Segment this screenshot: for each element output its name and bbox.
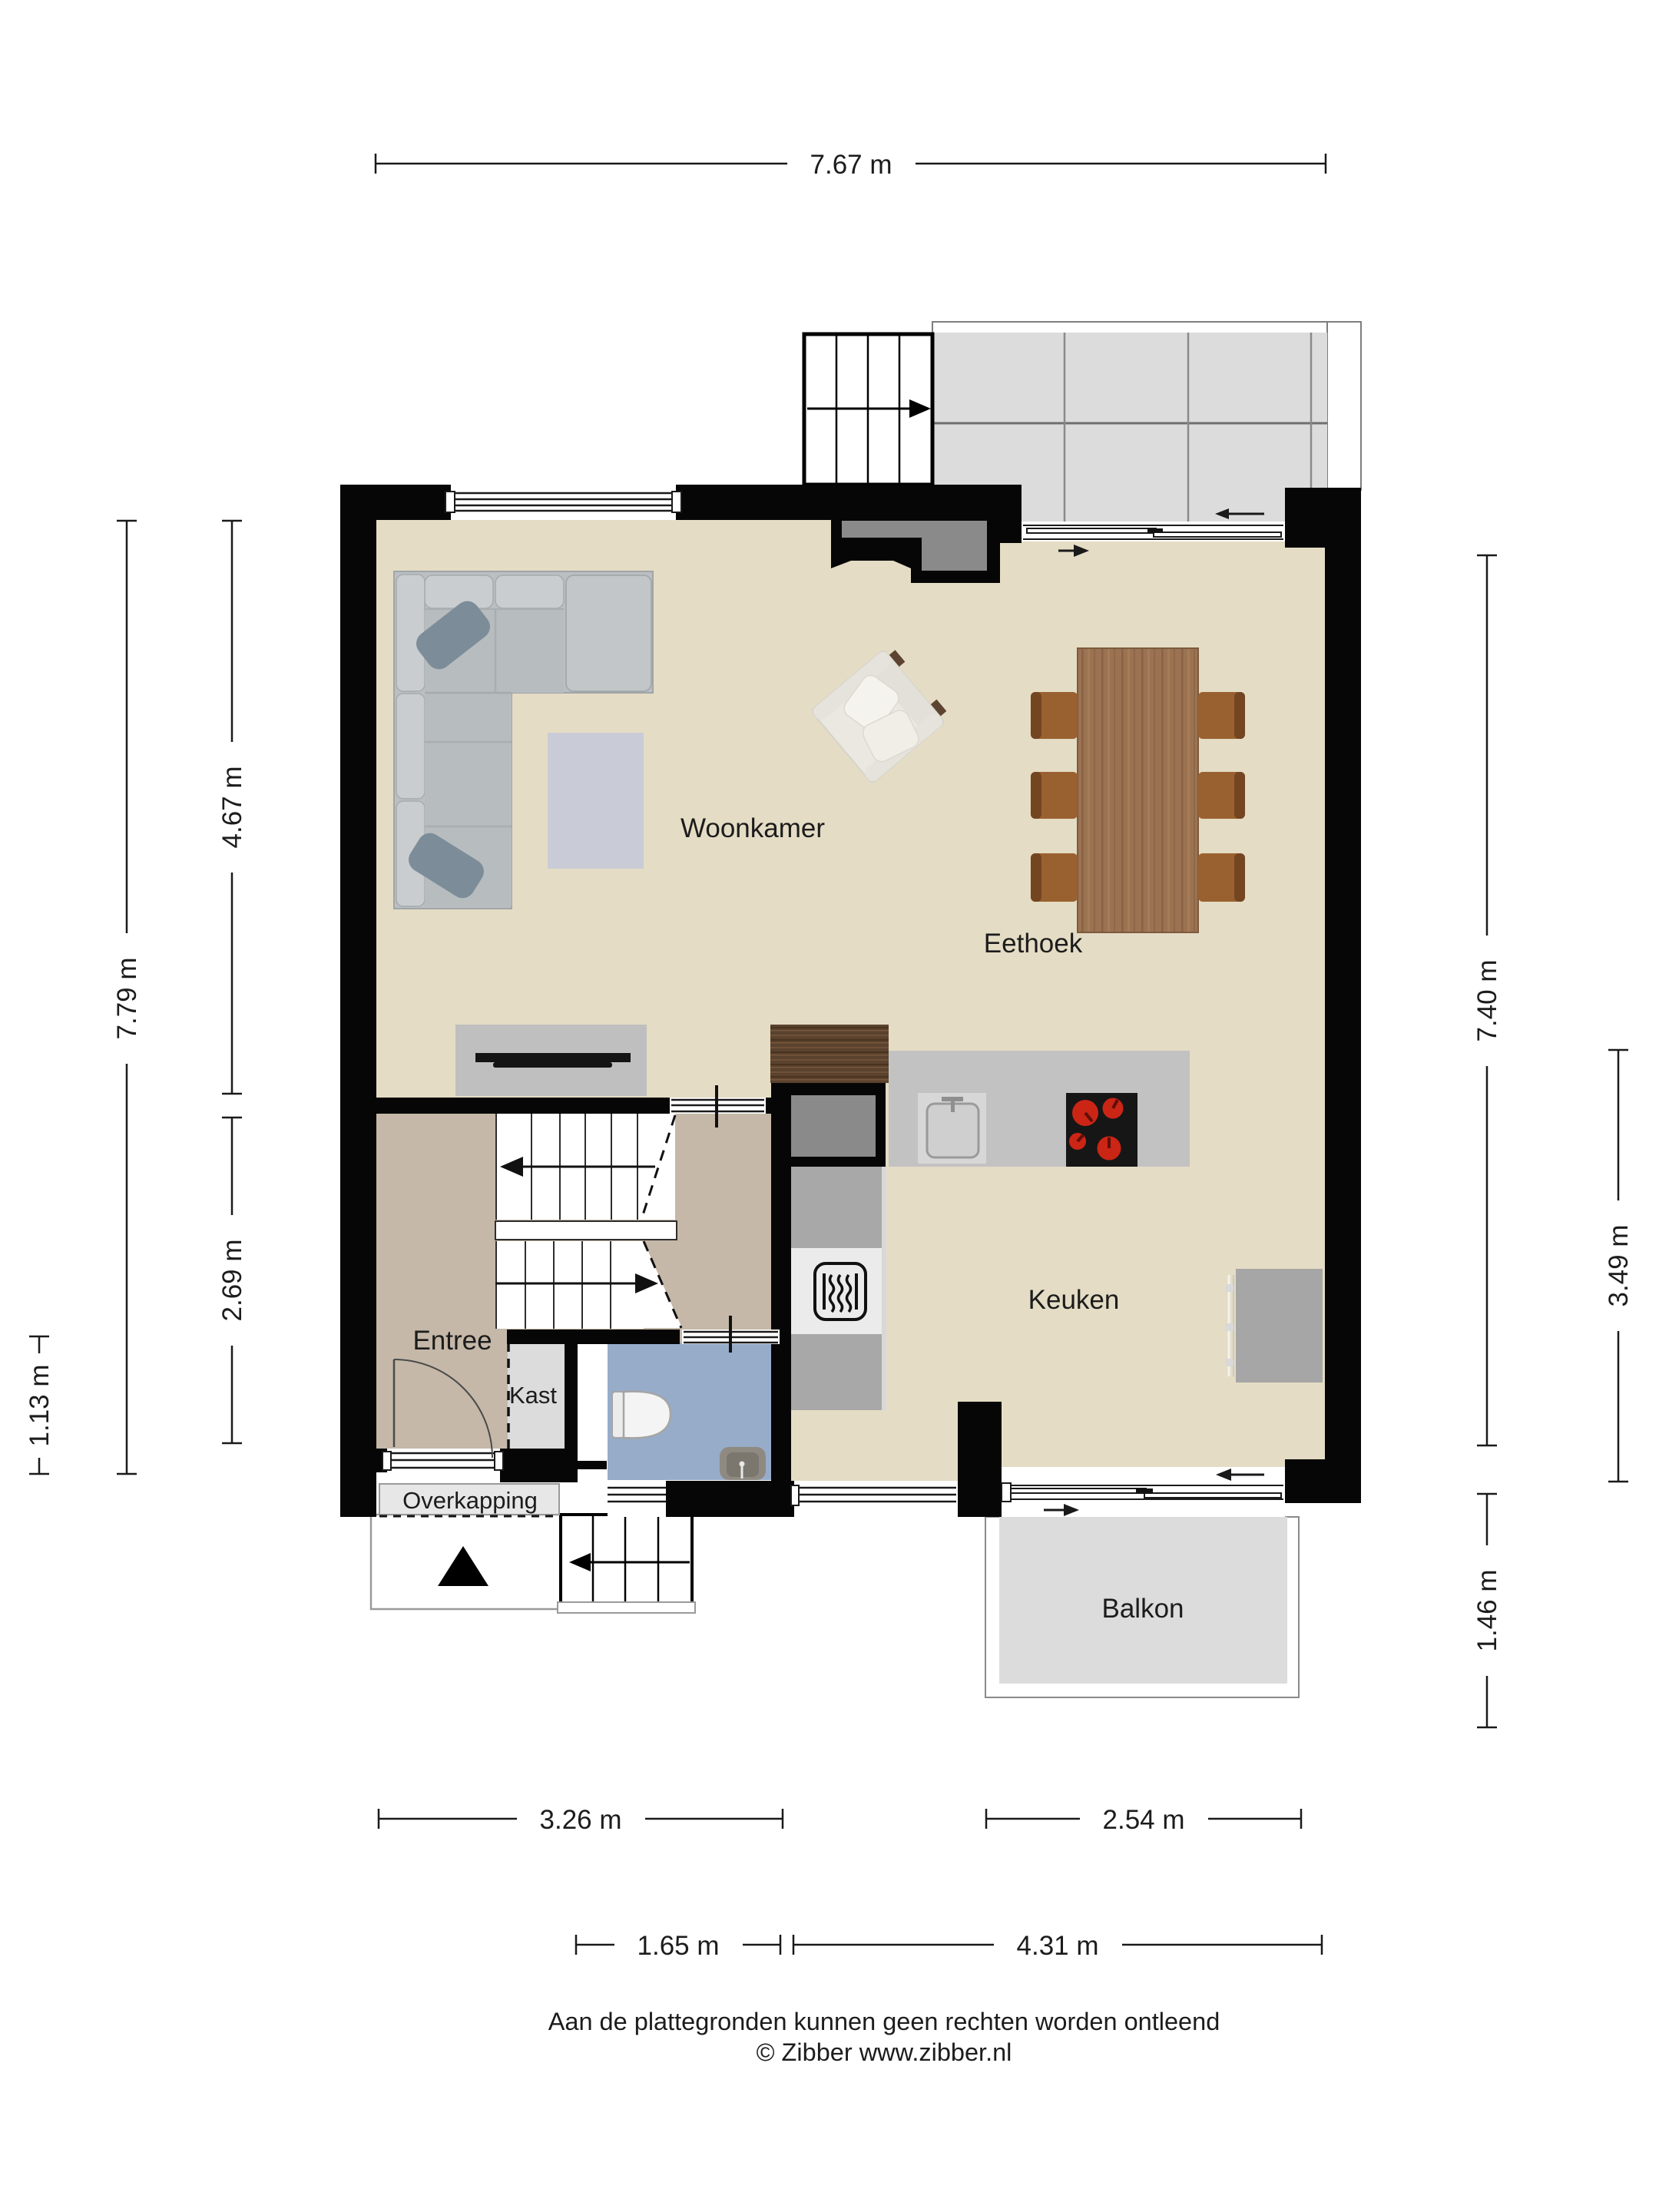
svg-text:Aan de plattegronden kunnen ge: Aan de plattegronden kunnen geen rechten… [548, 2008, 1220, 2035]
svg-text:© Zibber www.zibber.nl: © Zibber www.zibber.nl [757, 2038, 1012, 2066]
svg-text:Entree: Entree [412, 1326, 492, 1356]
svg-text:Keuken: Keuken [1028, 1285, 1120, 1315]
svg-text:3.26 m: 3.26 m [540, 1805, 622, 1835]
svg-text:Overkapping: Overkapping [402, 1487, 538, 1514]
svg-text:1.65 m: 1.65 m [637, 1931, 720, 1961]
svg-text:Kast: Kast [509, 1382, 557, 1409]
svg-text:Woonkamer: Woonkamer [680, 813, 825, 843]
svg-text:3.49 m: 3.49 m [1604, 1225, 1634, 1307]
svg-text:1.13 m: 1.13 m [25, 1365, 55, 1447]
svg-text:Balkon: Balkon [1101, 1594, 1184, 1624]
svg-text:4.67 m: 4.67 m [217, 767, 247, 849]
svg-text:2.54 m: 2.54 m [1103, 1805, 1185, 1835]
svg-text:7.79 m: 7.79 m [112, 958, 142, 1040]
svg-text:7.67 m: 7.67 m [810, 150, 892, 180]
svg-text:4.31 m: 4.31 m [1017, 1931, 1099, 1961]
svg-text:2.69 m: 2.69 m [217, 1240, 247, 1322]
svg-text:7.40 m: 7.40 m [1472, 960, 1502, 1042]
svg-text:Eethoek: Eethoek [984, 929, 1083, 959]
svg-text:1.46 m: 1.46 m [1472, 1570, 1502, 1652]
